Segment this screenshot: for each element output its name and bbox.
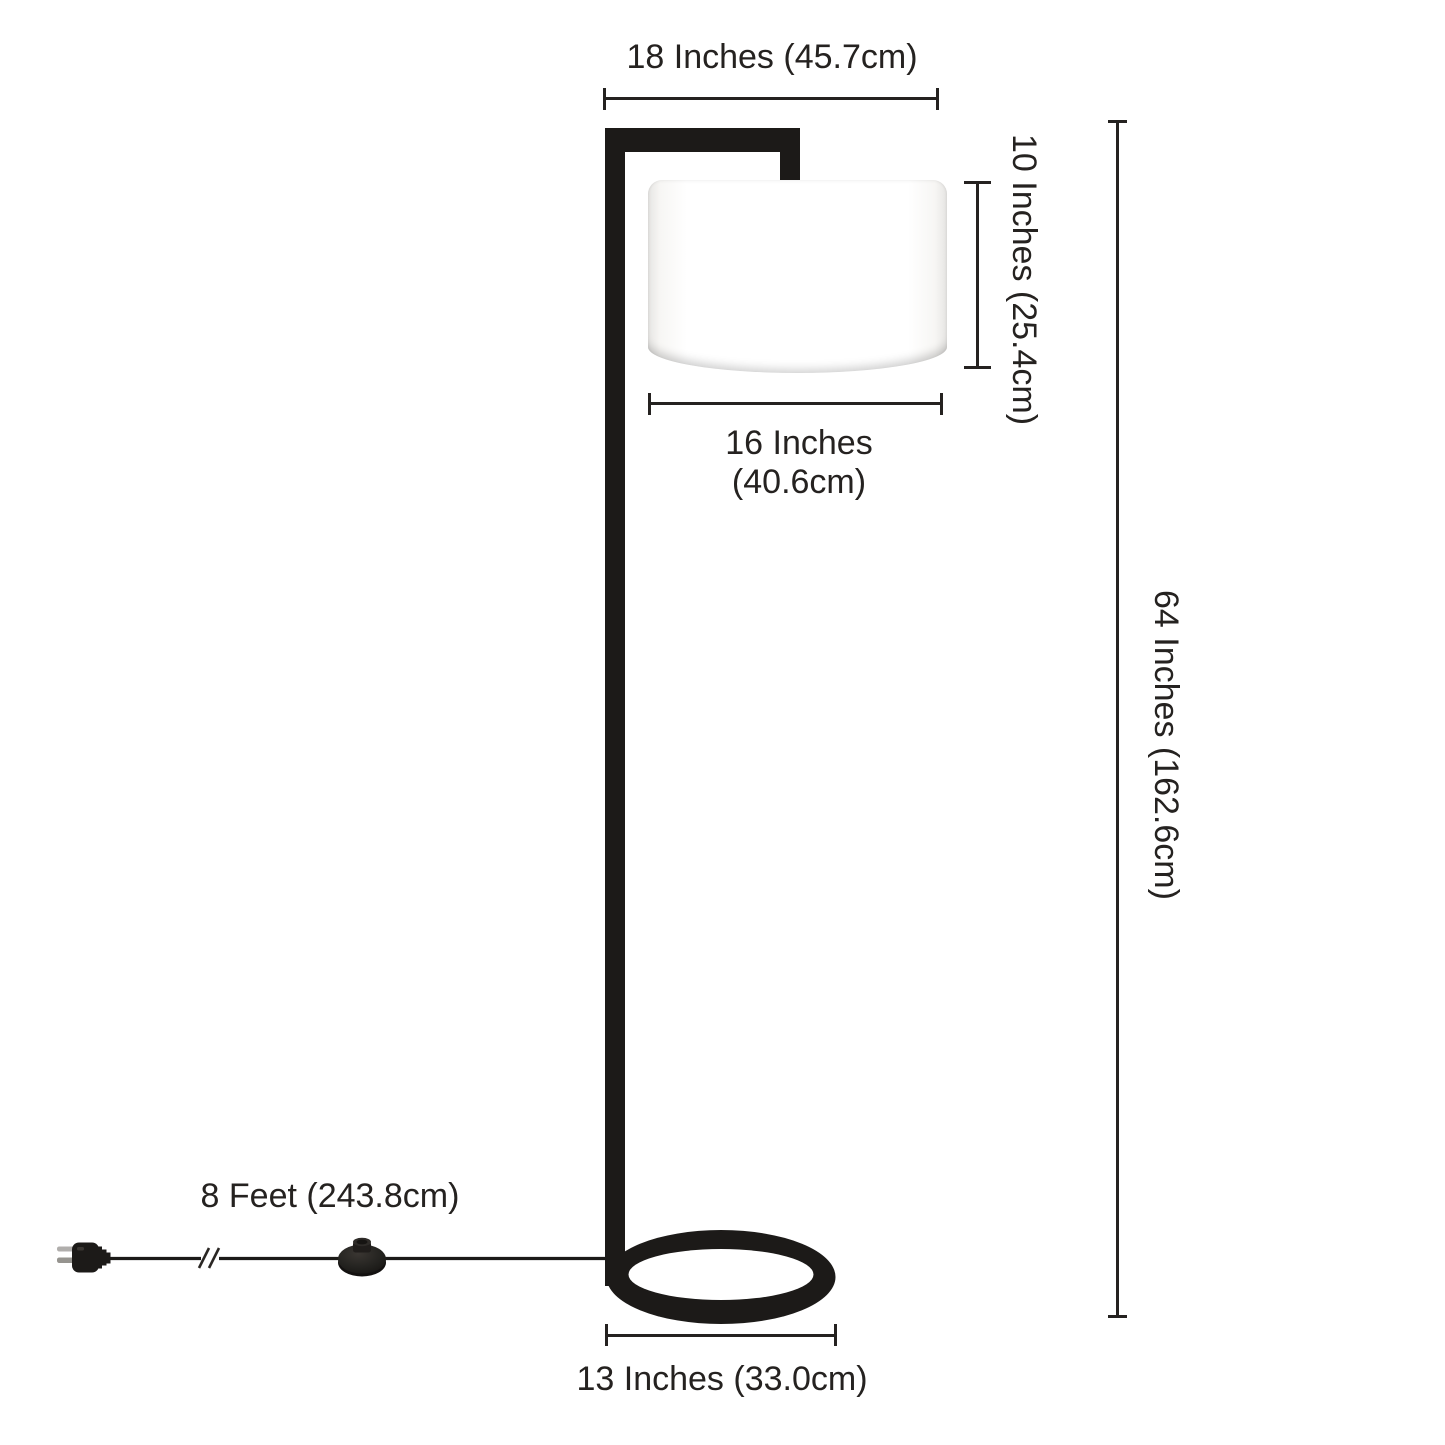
lamp-shade	[648, 180, 947, 373]
dimension-diagram: 18 Inches (45.7cm) 10 Inches (25.4cm) 16…	[0, 0, 1445, 1445]
cord-break-icon	[199, 1248, 219, 1268]
dim-label-base-width: 13 Inches (33.0cm)	[521, 1360, 923, 1399]
dim-label-shade-width-cm: (40.6cm)	[647, 463, 951, 502]
dim-label-arm-width: 18 Inches (45.7cm)	[572, 38, 972, 77]
dim-label-shade-width: 16 Inches (40.6cm)	[647, 424, 951, 502]
dim-tick	[834, 1324, 837, 1346]
dim-tick	[605, 1324, 608, 1346]
dim-tick	[936, 88, 939, 110]
ring-base	[607, 1230, 836, 1324]
lamp-pole	[605, 128, 625, 1286]
dim-tick	[648, 393, 651, 415]
lamp-arm	[605, 128, 800, 152]
dim-label-shade-height: 10 Inches (25.4cm)	[999, 112, 1043, 448]
power-plug-icon	[57, 1243, 111, 1273]
dim-label-shade-width-inches: 16 Inches	[647, 424, 951, 463]
dim-line-arm-width	[605, 97, 938, 100]
dim-tick	[940, 393, 943, 415]
dim-line-base-width	[607, 1334, 836, 1337]
dim-line-total-height	[1116, 121, 1119, 1317]
foot-switch-icon	[338, 1238, 386, 1277]
dim-line-shade-height	[976, 182, 979, 368]
dim-tick	[1108, 120, 1127, 123]
dim-line-shade-width	[650, 402, 942, 405]
dim-tick	[964, 181, 991, 184]
lamp-shade-hanger	[780, 150, 800, 184]
dim-label-total-height: 64 Inches (162.6cm)	[1141, 560, 1185, 930]
dim-tick	[603, 88, 606, 110]
dim-tick	[1108, 1315, 1127, 1318]
dim-label-cord-length: 8 Feet (243.8cm)	[130, 1177, 530, 1216]
dim-tick	[964, 366, 991, 369]
